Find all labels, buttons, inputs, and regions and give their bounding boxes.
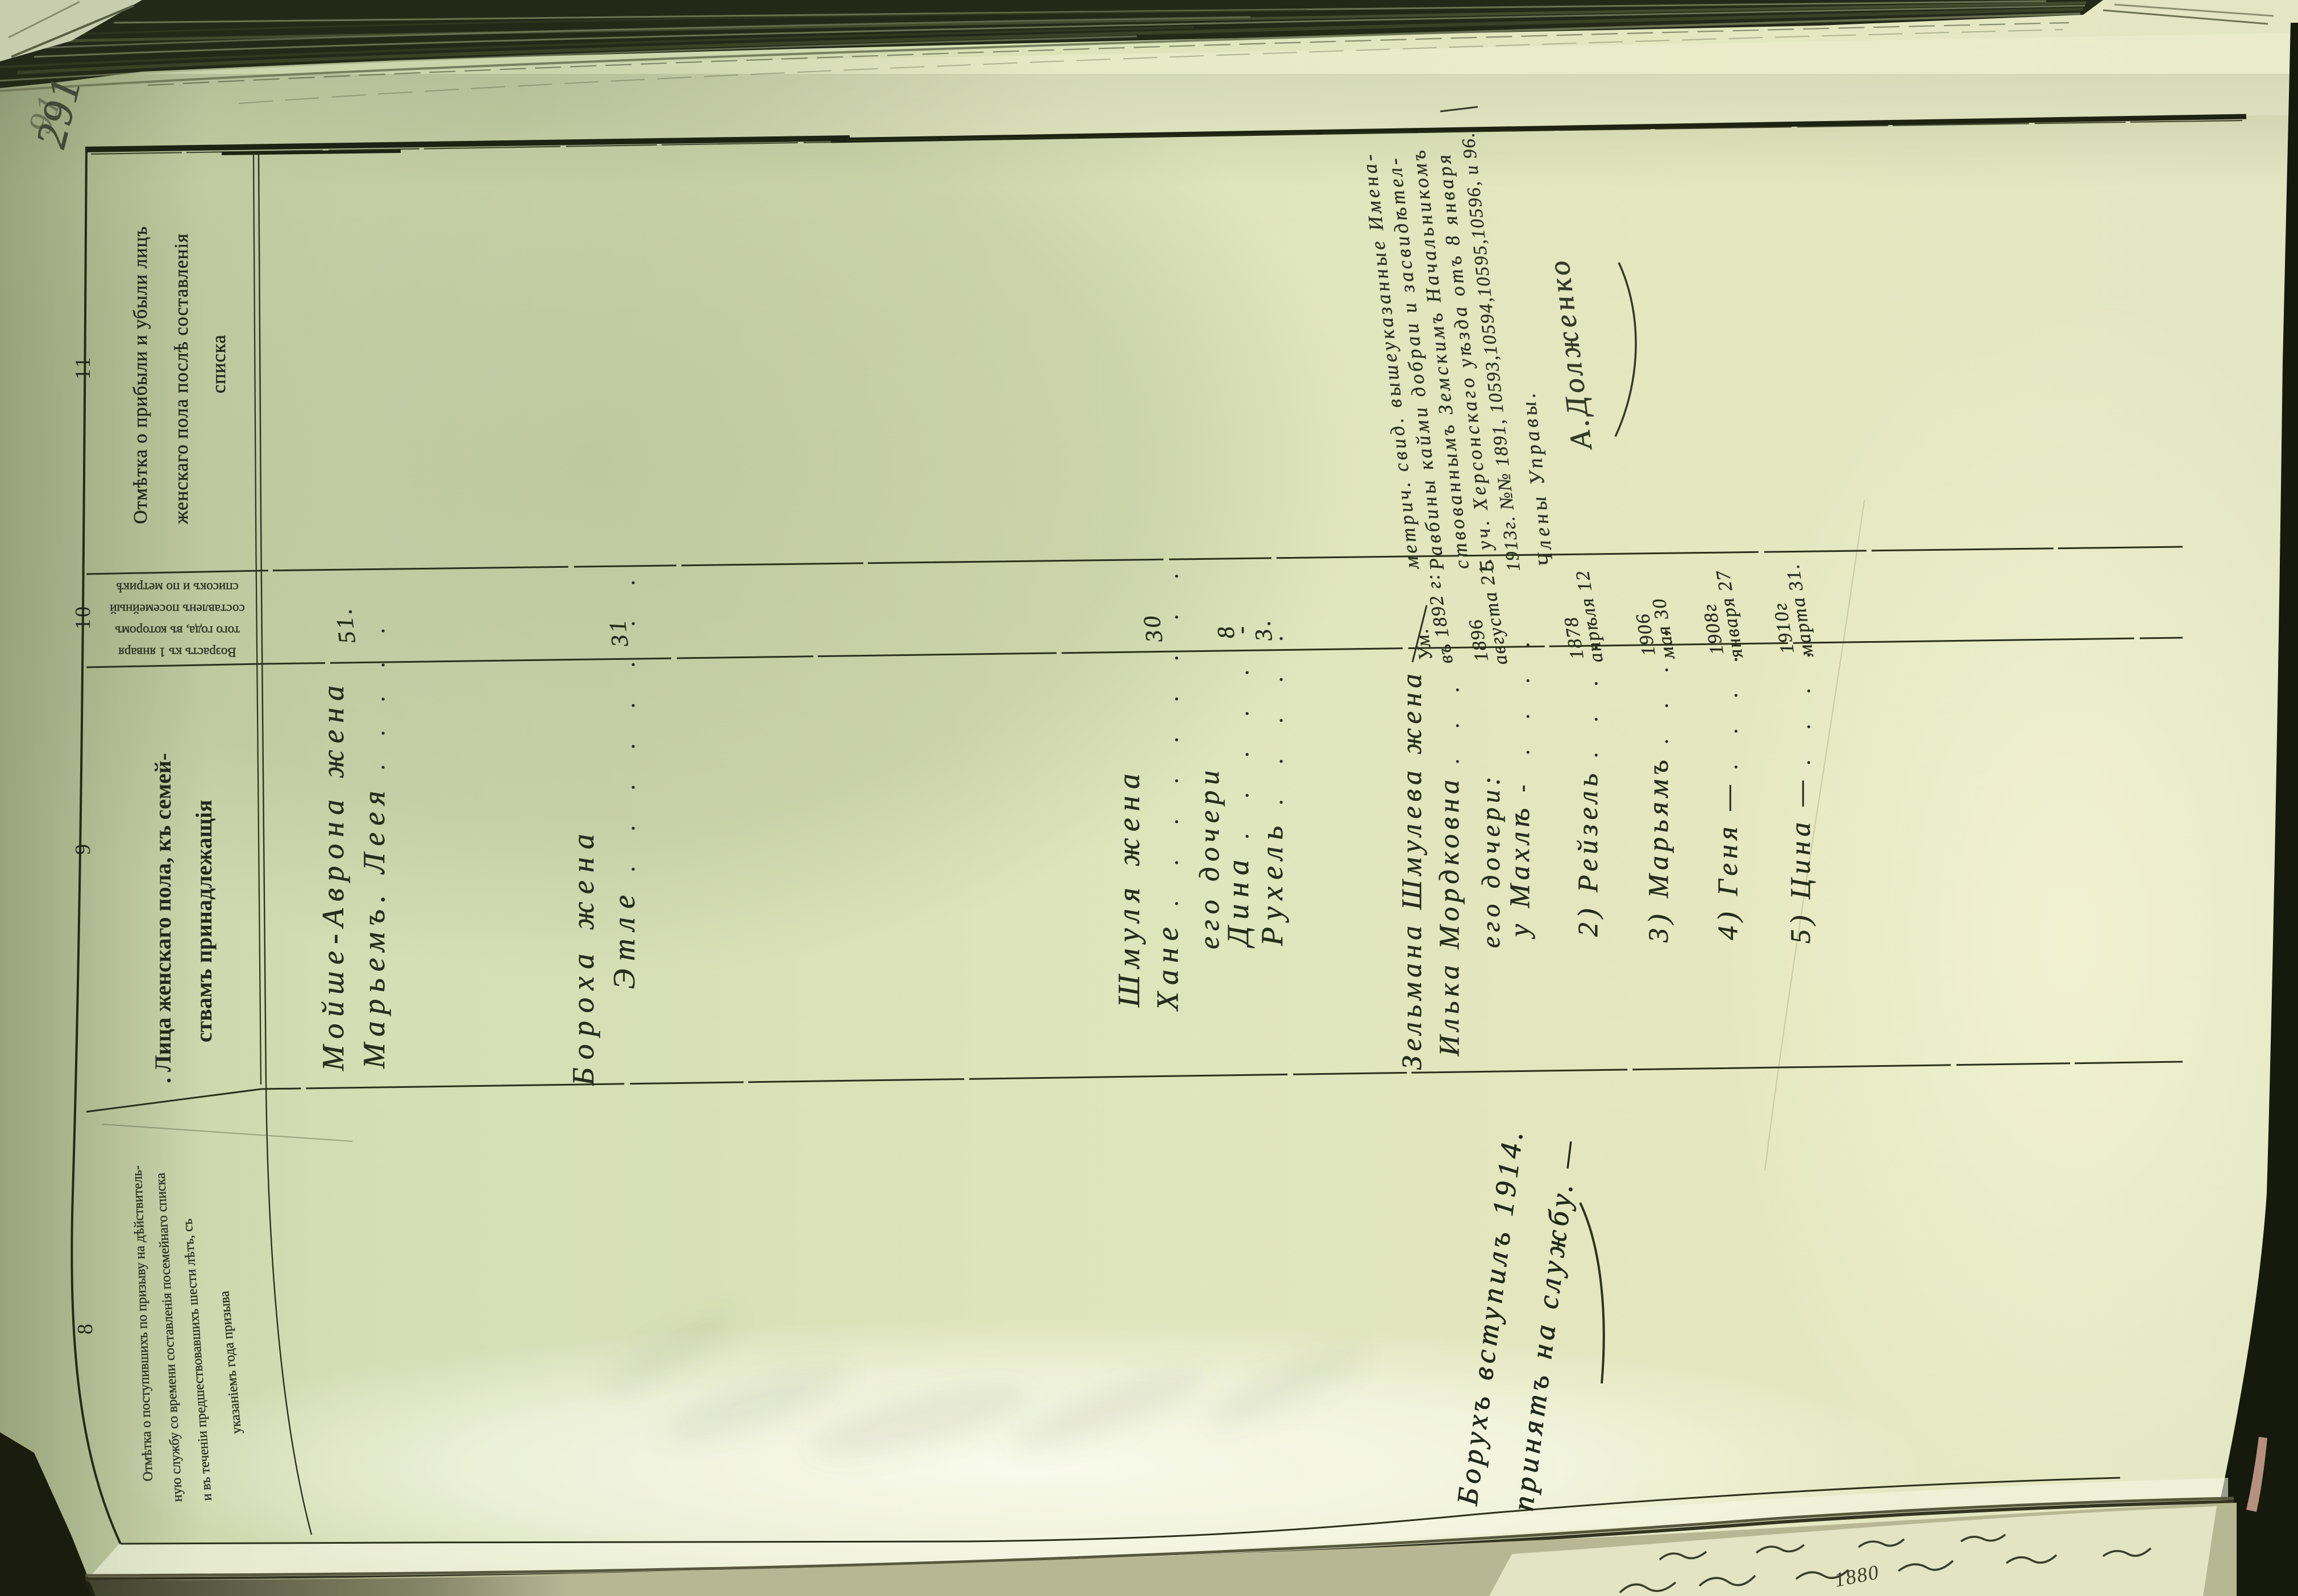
- svg-text:его дочери: его дочери: [1193, 765, 1225, 949]
- svg-text:Шмуля жена: Шмуля жена: [1112, 767, 1146, 1008]
- svg-text:составленъ посемейный: составленъ посемейный: [110, 602, 244, 616]
- svg-text:того года, въ которомъ: того года, въ которомъ: [115, 624, 240, 638]
- svg-text:Отмѣтка о прибыли и убыли: Отмѣтка о прибыли и убыли лицъ: [130, 226, 151, 524]
- svg-text:списка: списка: [209, 334, 230, 393]
- svg-text:его дочери:: его дочери:: [1476, 772, 1505, 948]
- svg-text:Мойше-Аврона жена: Мойше-Аврона жена: [316, 679, 350, 1071]
- svg-text:8: 8: [73, 1324, 97, 1335]
- svg-text:3.: 3.: [1249, 617, 1278, 643]
- svg-text:. Лица женскаго пола, къ семей: . Лица женскаго пола, къ семей-: [150, 753, 176, 1083]
- svg-text:Бороха жена: Бороха жена: [566, 826, 600, 1086]
- svg-text:51.: 51.: [330, 605, 361, 645]
- svg-text:женскаго пола послѣ составл: женскаго пола послѣ составленія: [171, 233, 192, 525]
- svg-text:10: 10: [71, 605, 95, 630]
- svg-text:Зельмана Шмулева жена: Зельмана Шмулева жена: [1395, 670, 1427, 1070]
- svg-text:списокъ и по метрикѣ: списокъ и по метрикѣ: [116, 580, 239, 595]
- svg-text:30: 30: [1138, 612, 1168, 644]
- svg-text:11: 11: [71, 355, 95, 380]
- svg-text:ствамъ принадлежащія: ствамъ принадлежащія: [191, 800, 217, 1042]
- svg-text:Возрастъ къ 1 января: Возрастъ къ 1 января: [118, 645, 236, 659]
- svg-text:9: 9: [71, 844, 95, 855]
- svg-text:31: 31: [604, 617, 634, 649]
